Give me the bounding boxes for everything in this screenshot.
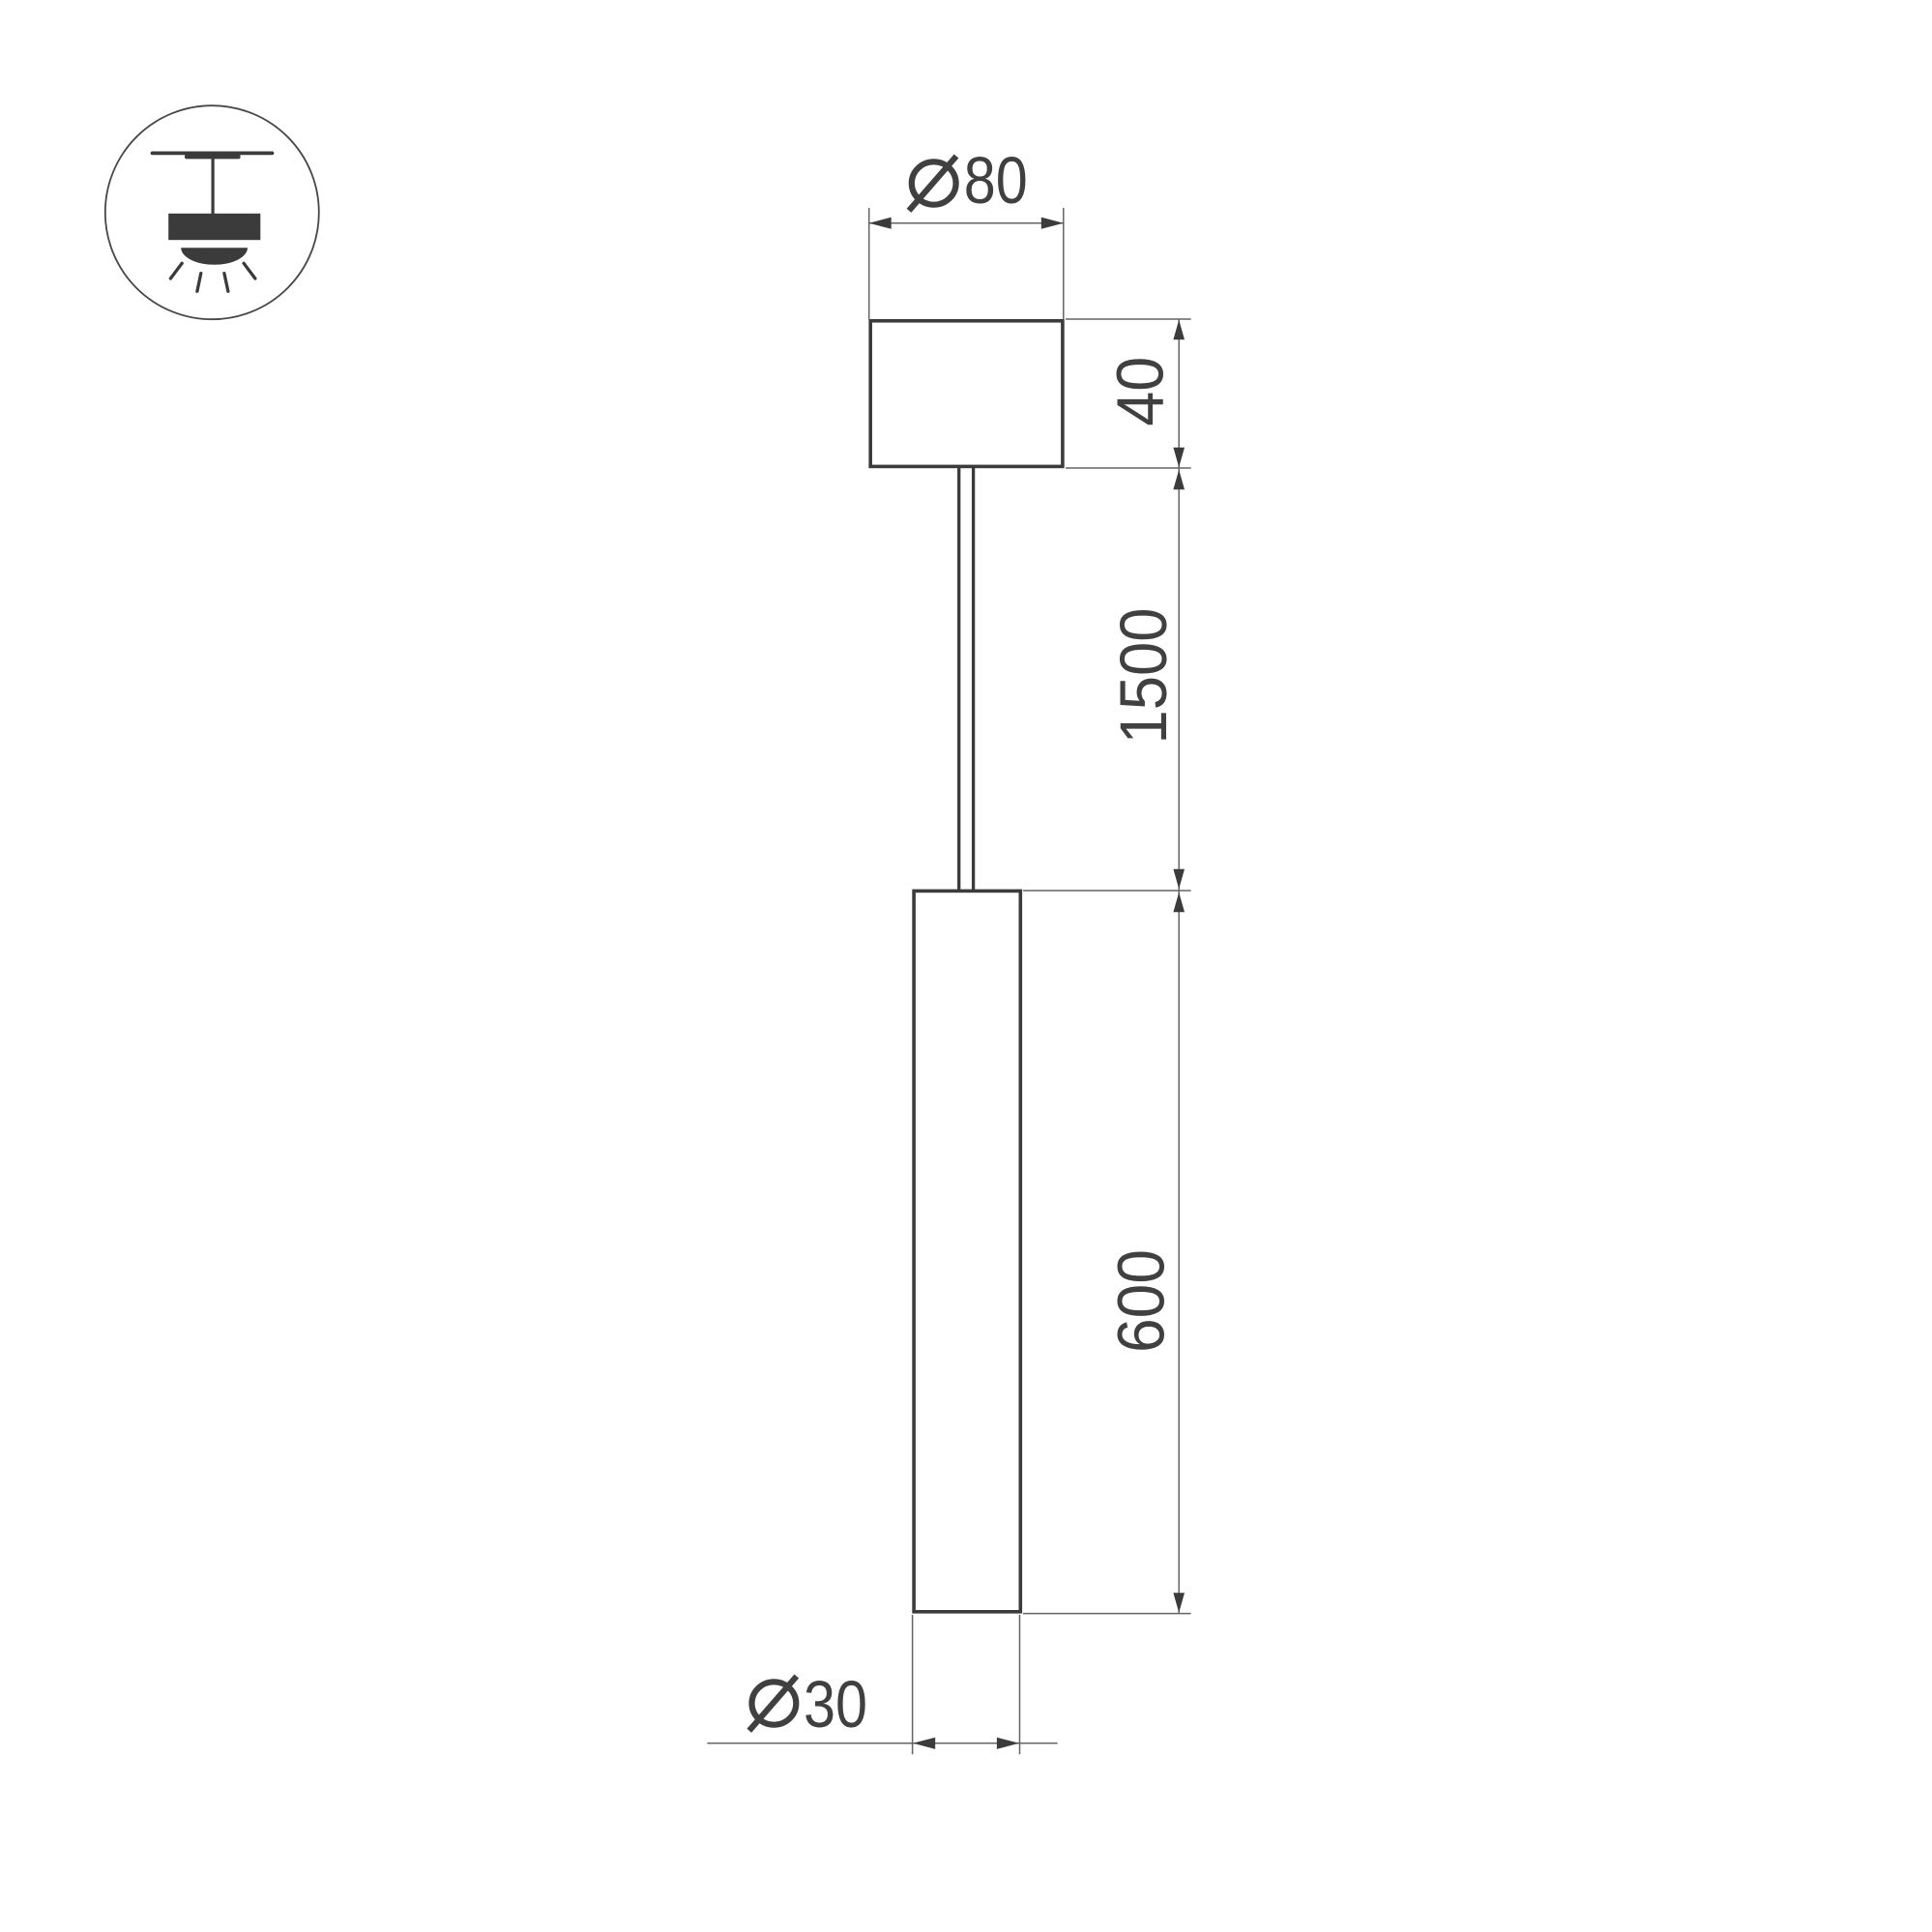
- svg-text:1500: 1500: [1106, 608, 1181, 745]
- svg-text:80: 80: [964, 143, 1028, 218]
- svg-text:40: 40: [1103, 357, 1178, 426]
- svg-text:30: 30: [804, 1667, 867, 1742]
- svg-text:600: 600: [1104, 1249, 1179, 1353]
